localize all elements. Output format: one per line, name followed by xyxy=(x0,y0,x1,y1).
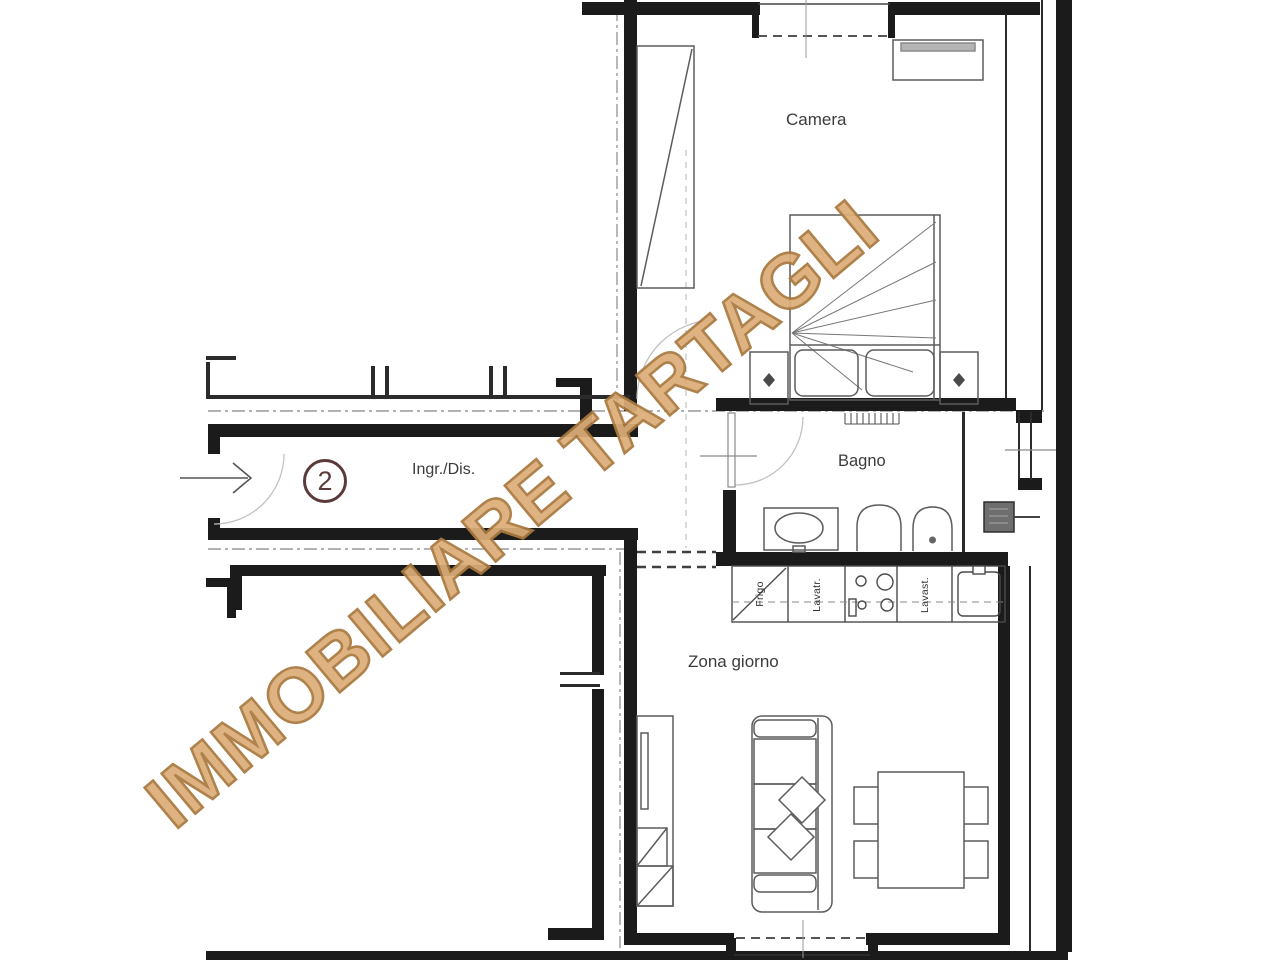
dining-set xyxy=(854,772,988,888)
entry-arrow xyxy=(180,463,251,493)
living-left-wall xyxy=(624,540,637,945)
kitchen-sink xyxy=(958,572,1000,616)
appliance-label-lavatrice: Lavatr. xyxy=(811,578,823,612)
passage-dashes xyxy=(637,552,716,567)
lamp-icon xyxy=(763,373,775,387)
chair xyxy=(854,787,880,824)
bidet xyxy=(913,507,952,551)
pillow xyxy=(866,350,934,396)
appliance-label-lavastoviglie: Lavast. xyxy=(919,577,931,613)
bathroom-partition-wall xyxy=(962,412,965,552)
sofa-pillow xyxy=(768,814,814,860)
bathroom-door-arc xyxy=(735,417,803,485)
entry-door-arc xyxy=(214,454,284,524)
living-furniture xyxy=(637,716,988,912)
room-label-camera: Camera xyxy=(786,110,846,130)
bathroom-door-leaf xyxy=(728,413,735,487)
bathroom-bottom-wall xyxy=(716,552,1008,566)
floorplan-canvas: Camera Bagno Ingr./Dis. Zona giorno Frig… xyxy=(0,0,1280,960)
pillow xyxy=(795,350,858,396)
stove xyxy=(849,574,893,616)
windows xyxy=(734,0,890,958)
living-right-wall xyxy=(998,566,1010,945)
bottom-edge-wall xyxy=(206,951,1068,960)
chair xyxy=(962,787,988,824)
appliance-label-frigo: Frigo xyxy=(754,581,766,606)
lamp-icon xyxy=(953,373,965,387)
kitchen-counter xyxy=(732,566,1005,622)
bedroom-left-wall xyxy=(624,0,637,411)
bathroom-fixtures xyxy=(764,413,1040,552)
toilet xyxy=(857,505,901,551)
chair xyxy=(854,841,880,878)
room-label-bagno: Bagno xyxy=(838,452,886,471)
bathroom-radiator xyxy=(845,413,899,424)
unit-number-badge: 2 xyxy=(303,459,347,503)
building-right-wall xyxy=(1056,0,1072,952)
room-label-zona-giorno: Zona giorno xyxy=(688,652,779,672)
sofa xyxy=(752,716,832,912)
boiler xyxy=(984,502,1014,532)
room-label-ingresso: Ingr./Dis. xyxy=(412,461,475,479)
chair xyxy=(962,841,988,878)
tv-unit xyxy=(637,716,673,906)
dining-table xyxy=(878,772,964,888)
